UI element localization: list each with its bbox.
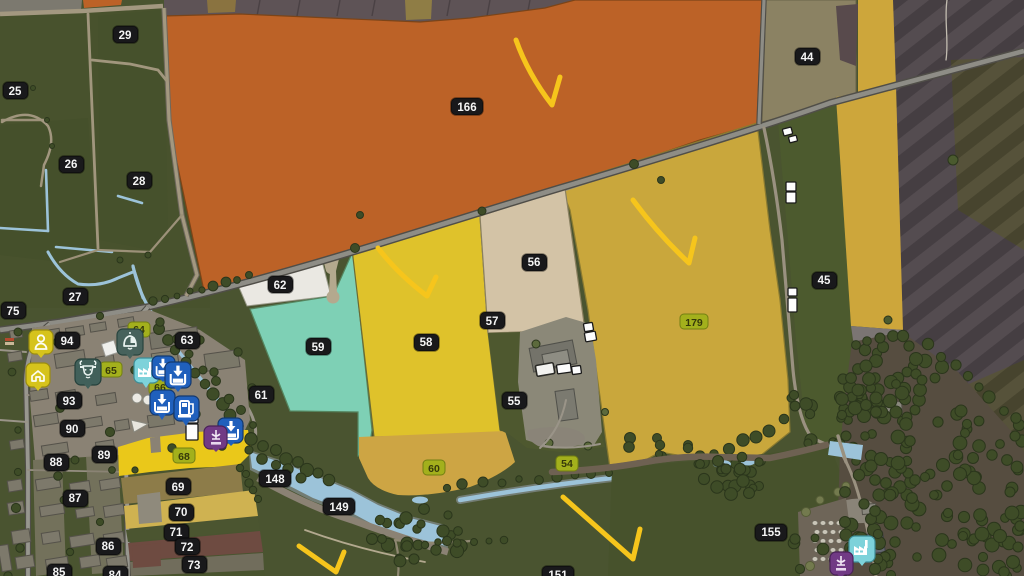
svg-text:84: 84 (109, 570, 122, 576)
svg-text:54: 54 (561, 458, 573, 470)
svg-text:45: 45 (818, 275, 831, 287)
svg-text:62: 62 (274, 280, 287, 292)
svg-text:94: 94 (61, 336, 74, 348)
svg-text:72: 72 (181, 542, 194, 554)
svg-text:59: 59 (312, 342, 325, 354)
svg-text:86: 86 (102, 541, 115, 553)
svg-text:57: 57 (486, 316, 499, 328)
svg-text:73: 73 (188, 560, 201, 572)
svg-text:148: 148 (265, 474, 285, 486)
svg-text:155: 155 (761, 527, 781, 539)
svg-text:60: 60 (428, 463, 440, 475)
svg-text:58: 58 (420, 337, 433, 349)
svg-text:26: 26 (65, 159, 78, 171)
svg-text:28: 28 (133, 176, 146, 188)
svg-text:27: 27 (69, 292, 82, 304)
svg-text:65: 65 (105, 365, 117, 377)
svg-text:75: 75 (7, 306, 20, 318)
svg-text:61: 61 (255, 390, 268, 402)
svg-text:88: 88 (50, 457, 63, 469)
svg-text:90: 90 (66, 424, 79, 436)
svg-text:179: 179 (685, 317, 703, 329)
svg-text:56: 56 (528, 257, 541, 269)
svg-text:55: 55 (508, 396, 521, 408)
svg-text:93: 93 (63, 396, 76, 408)
svg-text:44: 44 (801, 52, 814, 64)
svg-text:25: 25 (9, 86, 22, 98)
svg-text:149: 149 (329, 502, 348, 514)
svg-text:85: 85 (53, 567, 66, 576)
svg-text:89: 89 (98, 450, 111, 462)
svg-text:151: 151 (548, 570, 568, 576)
svg-text:68: 68 (178, 451, 190, 463)
svg-text:166: 166 (457, 102, 476, 114)
svg-text:69: 69 (172, 482, 185, 494)
svg-text:63: 63 (181, 335, 194, 347)
svg-text:29: 29 (119, 30, 132, 42)
svg-text:70: 70 (175, 507, 188, 519)
svg-text:87: 87 (69, 493, 82, 505)
